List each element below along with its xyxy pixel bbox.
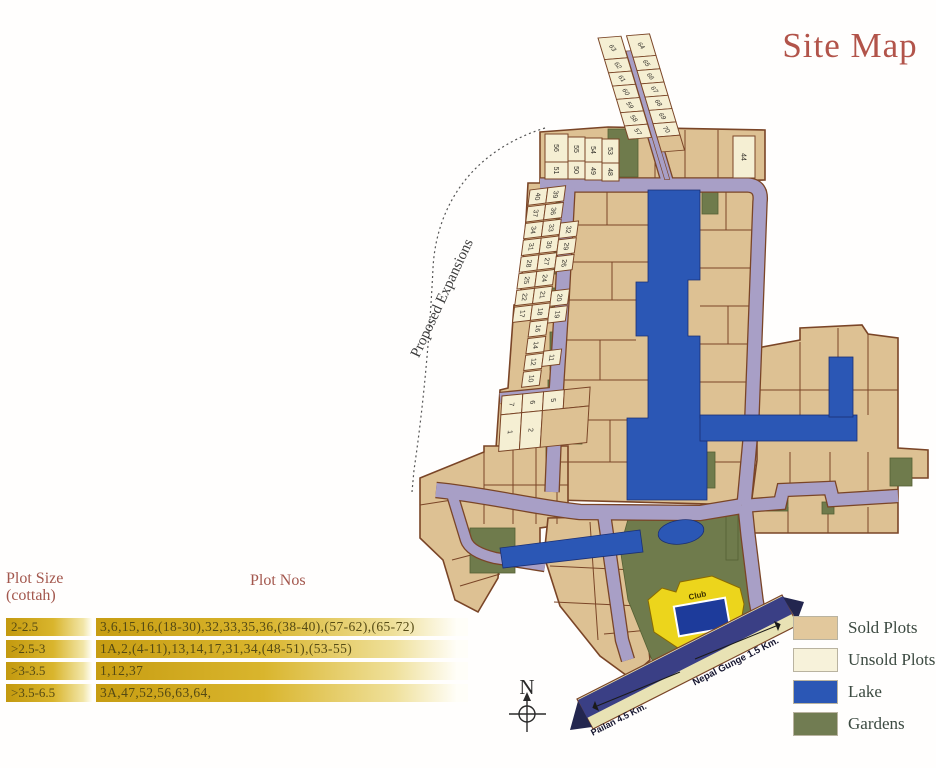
sold-plots-swatch	[793, 616, 838, 640]
plot-number: 29	[561, 242, 569, 250]
legend-label: Sold Plots	[848, 618, 917, 638]
plot-number: 10	[526, 375, 534, 383]
plot-number: 28	[524, 259, 532, 267]
plot	[540, 406, 589, 447]
plot-number: 26	[559, 259, 567, 267]
proposed-expansions-label: Proposed Expansions	[408, 236, 477, 360]
nos-cell: 1,12,37	[96, 662, 468, 680]
site-map-page: 6362616059585764656667686970403937363433…	[0, 0, 936, 768]
plot-number: 34	[528, 226, 536, 234]
legend-label: Gardens	[848, 714, 905, 734]
plot-number: 53	[606, 147, 613, 155]
plot	[563, 387, 590, 408]
garden-area	[890, 458, 912, 486]
size-cell: >3.5-6.5	[6, 684, 92, 702]
plot-number: 44	[740, 153, 747, 161]
header-line2: (cottah)	[6, 587, 63, 604]
lake-water	[700, 415, 857, 441]
south-west-small-block: 76512	[499, 387, 590, 451]
plot-number: 14	[531, 341, 539, 349]
road	[744, 440, 750, 505]
nos-cell: 1A,2,(4-11),13,14,17,31,34,(48-51),(53-5…	[96, 640, 468, 658]
size-cell: >2.5-3	[6, 640, 92, 658]
plot-number: 49	[589, 167, 596, 175]
plot-number: 12	[529, 358, 537, 366]
size-cell: 2-2.5	[6, 618, 92, 636]
plot-number: 6	[528, 400, 535, 404]
plot-number: 21	[537, 291, 545, 299]
plot-number: 40	[533, 192, 541, 200]
lake-water	[829, 357, 853, 417]
plot-number: 24	[540, 274, 548, 282]
plot-number: 31	[526, 243, 534, 251]
plot-number: 7	[507, 402, 514, 406]
header-line1: Plot Size	[6, 570, 63, 587]
plot-number: 16	[533, 324, 541, 332]
lake-swatch	[793, 680, 838, 704]
plot-number: 1	[506, 430, 513, 434]
plot-number: 39	[551, 190, 559, 198]
plot-number: 11	[547, 354, 555, 362]
legend-label: Unsold Plots	[848, 650, 935, 670]
gardens-swatch	[793, 712, 838, 736]
plot	[657, 135, 685, 152]
plot-number: 20	[555, 294, 563, 302]
plot-number: 51	[552, 167, 559, 175]
plot-number: 54	[589, 146, 596, 154]
garden-area	[726, 510, 738, 560]
unsold-plots-swatch	[793, 648, 838, 672]
plot-number: 33	[546, 224, 554, 232]
plot-number: 22	[520, 293, 528, 301]
plot-number: 56	[552, 144, 559, 152]
size-cell: >3-3.5	[6, 662, 92, 680]
plot-number: 19	[552, 310, 560, 318]
plot-number: 17	[517, 310, 525, 318]
plot-number: 25	[522, 276, 530, 284]
plot-number: 2	[526, 428, 533, 432]
plot-number: 5	[549, 398, 556, 402]
plot-number: 32	[564, 226, 572, 234]
page-title: Site Map	[770, 26, 930, 66]
nos-cell: 3A,47,52,56,63,64,	[96, 684, 468, 702]
plot-number: 48	[606, 168, 613, 176]
plot-number: 36	[549, 207, 557, 215]
nos-cell: 3,6,15,16,(18-30),32,33,35,36,(38-40),(5…	[96, 618, 468, 636]
north-compass: N	[509, 675, 546, 732]
plot-number: 37	[531, 209, 539, 217]
plot-number: 18	[535, 308, 543, 316]
plot-number: 55	[572, 145, 579, 153]
plot-number: 30	[544, 241, 552, 249]
table-header-plot-nos: Plot Nos	[250, 572, 306, 589]
table-header-plot-size: Plot Size (cottah)	[6, 570, 63, 604]
plot-number: 27	[542, 257, 550, 265]
plot-number: 50	[572, 166, 579, 174]
legend-label: Lake	[848, 682, 882, 702]
